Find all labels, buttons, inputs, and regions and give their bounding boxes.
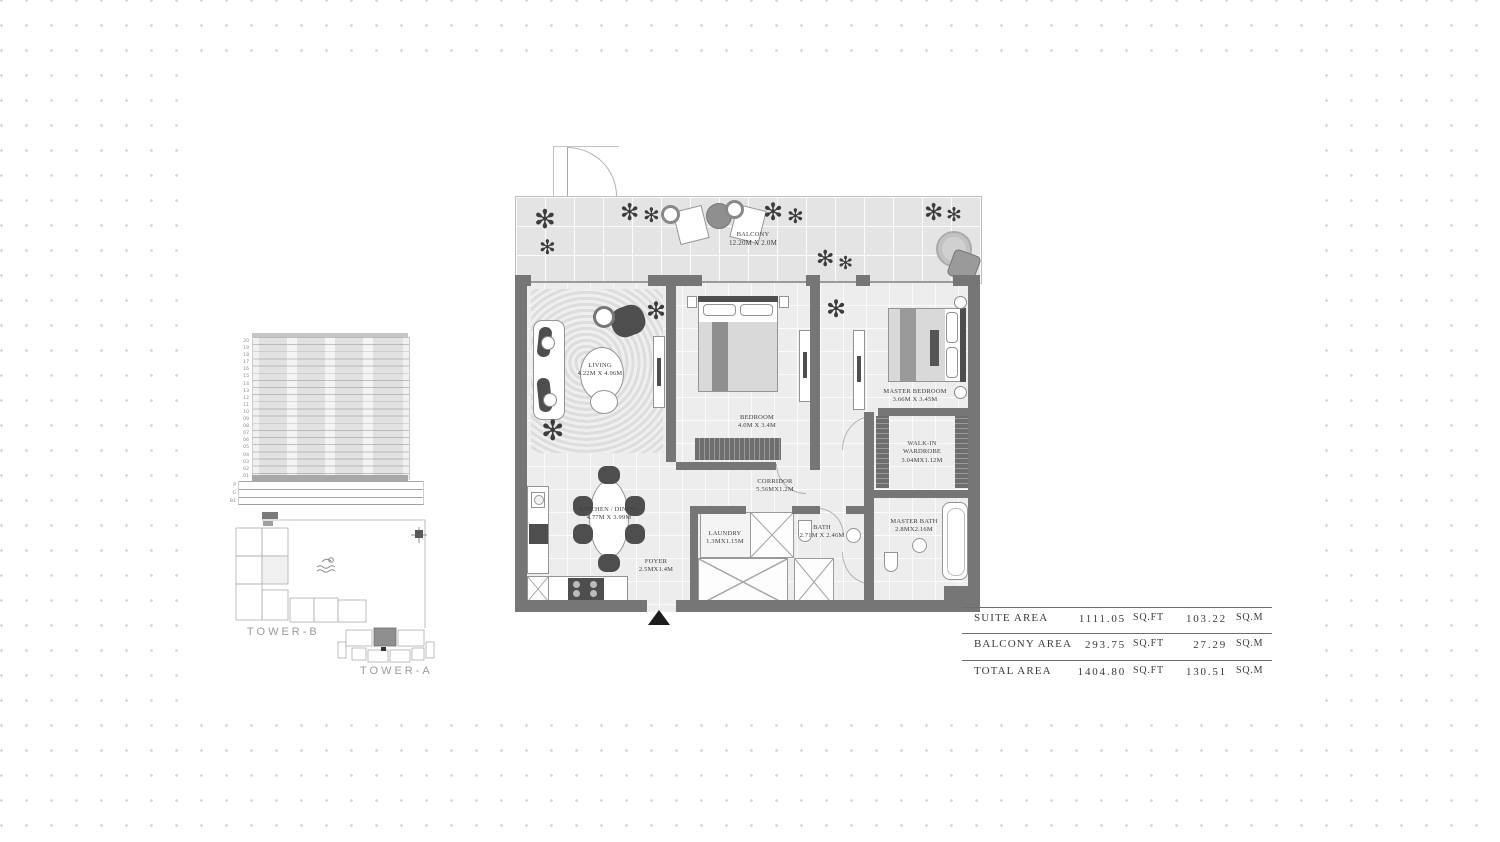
- room-label-bath: BATH 2.71M X 2.46M: [797, 524, 847, 541]
- room-dims: 4.22M X 4.96M: [565, 370, 635, 378]
- bed-throw: [712, 322, 728, 391]
- walkin-wardrobe-left: [876, 416, 889, 488]
- room-dims: 3.04MX1.12M: [897, 457, 947, 465]
- pillow: [740, 304, 773, 316]
- master-throw: [900, 309, 916, 381]
- wall-corridor-south: [690, 506, 746, 514]
- area-sqm-value: 103.22: [1155, 613, 1227, 625]
- plant-icon: ✻: [826, 298, 846, 322]
- burner: [573, 581, 580, 588]
- wall-master-zone: [864, 412, 874, 602]
- wall-bedroom-master: [810, 286, 820, 470]
- room-label-master-bedroom: MASTER BEDROOM 3.66M X 3.45M: [869, 388, 961, 405]
- side-table: [543, 393, 557, 407]
- room-name: MASTER BEDROOM: [869, 388, 961, 396]
- room-name: BEDROOM: [717, 414, 797, 422]
- room-name: KITCHEN / DINING: [574, 506, 644, 514]
- room-name: FOYER: [631, 558, 681, 566]
- wall-pylon: [806, 275, 820, 286]
- plant-icon: ✻: [924, 201, 943, 224]
- master-tv: [857, 356, 861, 382]
- room-dims: 12.20M X 2.0M: [683, 239, 823, 248]
- tower-b-label: TOWER-B: [247, 626, 320, 638]
- room-dims: 1.3MX1.15M: [700, 538, 750, 546]
- door-jamb-line: [553, 146, 554, 196]
- room-name: MASTER BATH: [887, 518, 941, 526]
- dining-chair: [598, 466, 620, 484]
- plant-icon: ✻: [816, 248, 834, 270]
- elevation-podium-labels: P G B1: [222, 482, 236, 506]
- door-head-line: [553, 146, 619, 147]
- bed-headboard: [698, 296, 778, 302]
- room-name: BALCONY: [683, 231, 823, 239]
- area-sqm-unit: SQ.M: [1236, 665, 1278, 676]
- room-dims: 4.0M X 3.4M: [717, 422, 797, 430]
- window-glazing: [515, 281, 980, 283]
- burner: [573, 590, 580, 597]
- wardrobe: [695, 438, 781, 460]
- master-sink: [912, 538, 927, 553]
- room-dims: 4.77M X 3.99M: [574, 514, 644, 522]
- dining-chair: [598, 554, 620, 572]
- wall-right: [968, 282, 980, 586]
- master-headboard: [960, 308, 966, 382]
- elevation-level01-band: [252, 475, 408, 481]
- plant-icon: ✻: [534, 206, 556, 232]
- room-label-kitchen-dining: KITCHEN / DINING 4.77M X 3.99M: [574, 506, 644, 523]
- room-name: BATH: [797, 524, 847, 532]
- room-label-foyer: FOYER 2.5MX1.4M: [631, 558, 681, 575]
- wall-left: [515, 282, 527, 612]
- elevation-floor-lines: [253, 337, 409, 480]
- room-dims: 5.56MX1.2M: [740, 486, 810, 494]
- wall-walkin-bottom: [874, 490, 980, 498]
- wall-corridor-south: [846, 506, 864, 514]
- wall-living-bedroom: [666, 286, 676, 462]
- wall-master-bottom: [878, 408, 980, 416]
- elevation-podium: [238, 481, 424, 505]
- area-sqft-value: 1404.80: [1030, 666, 1126, 678]
- brochure-page: 20 19 18 17 16 15 14 13 12 11 10 09 08 0…: [0, 0, 1500, 842]
- burner: [590, 581, 597, 588]
- room-label-master-bath: MASTER BATH 2.8MX2.16M: [887, 518, 941, 535]
- balcony-stool: [725, 200, 744, 219]
- elevation-roof-band: [252, 333, 408, 337]
- sink-basin: [534, 495, 544, 505]
- shaft-cross-icon: [699, 559, 787, 605]
- bed-duvet: [699, 322, 777, 391]
- wall-pylon: [856, 275, 870, 286]
- wall-bottom-left: [515, 600, 647, 612]
- room-dims: 2.8MX2.16M: [887, 526, 941, 534]
- wall-pylon: [648, 275, 702, 286]
- pool-swimmer-icon: [317, 558, 335, 573]
- room-label-balcony: BALCONY 12.20M X 2.0M: [683, 231, 823, 249]
- room-name: LIVING: [565, 362, 635, 370]
- wall-bottom-right: [676, 600, 964, 612]
- plant-icon: ✻: [946, 206, 962, 225]
- room-name: CORRIDOR: [740, 478, 810, 486]
- pillow: [946, 347, 958, 378]
- folded-blanket: [930, 330, 939, 366]
- table-rule: [962, 660, 1272, 661]
- fridge: [527, 576, 549, 602]
- plant-icon: ✻: [539, 238, 556, 258]
- area-sqm-value: 130.51: [1155, 666, 1227, 678]
- room-dims: 3.66M X 3.45M: [869, 396, 961, 404]
- plant-icon: ✻: [787, 207, 804, 227]
- pillow: [946, 312, 958, 343]
- elevation-floor-numbers: 20 19 18 17 16 15 14 13 12 11 10 09 08 0…: [234, 338, 249, 481]
- room-name: WALK-IN WARDROBE: [897, 440, 947, 457]
- nightstand: [687, 296, 697, 308]
- area-sqft-value: 1111.05: [1030, 613, 1126, 625]
- plant-icon: ✻: [763, 201, 783, 225]
- oven: [529, 524, 548, 544]
- plant-icon: ✻: [620, 201, 639, 224]
- site-gate-icon-2: [263, 521, 273, 526]
- burner: [590, 590, 597, 597]
- table-rule: [962, 607, 1272, 608]
- area-sqm-unit: SQ.M: [1236, 638, 1278, 649]
- fridge-cross-icon: [528, 577, 548, 601]
- side-table: [541, 336, 555, 350]
- lamp: [954, 296, 967, 309]
- bedroom-tv: [803, 352, 807, 378]
- plant-icon: ✻: [838, 254, 853, 272]
- area-sqm-unit: SQ.M: [1236, 612, 1278, 623]
- wall-corner: [944, 586, 980, 612]
- wall-foyer: [690, 506, 698, 612]
- room-label-laundry: LAUNDRY 1.3MX1.15M: [700, 530, 750, 547]
- room-dims: 2.5MX1.4M: [631, 566, 681, 574]
- coffee-table-small: [590, 390, 618, 414]
- balcony-stool: [661, 205, 680, 224]
- dining-chair: [625, 524, 645, 544]
- plant-icon: ✻: [646, 300, 666, 324]
- plant-icon: ✻: [643, 206, 660, 226]
- walkin-wardrobe-right: [955, 416, 968, 488]
- entry-marker-icon: [648, 610, 670, 625]
- tower-a-label: TOWER-A: [360, 665, 433, 677]
- wall-corridor-south: [792, 506, 820, 514]
- round-side-table: [593, 306, 615, 328]
- room-name: LAUNDRY: [700, 530, 750, 538]
- shaft: [698, 558, 788, 606]
- area-sqm-value: 27.29: [1155, 639, 1227, 651]
- table-rule: [962, 633, 1272, 634]
- pillow: [703, 304, 736, 316]
- room-label-corridor: CORRIDOR 5.56MX1.2M: [740, 478, 810, 495]
- plant-icon: ✻: [541, 417, 564, 445]
- bathtub-inner: [947, 508, 965, 576]
- room-label-living: LIVING 4.22M X 4.96M: [565, 362, 635, 379]
- wall-bedroom-corridor: [676, 462, 776, 470]
- tower-elevation-diagram: [252, 337, 410, 480]
- dining-chair: [573, 524, 593, 544]
- site-gate-icon: [262, 512, 278, 519]
- shaft: [750, 512, 794, 558]
- site-key-plan: [230, 505, 442, 685]
- room-dims: 2.71M X 2.46M: [797, 532, 847, 540]
- stove: [568, 578, 604, 600]
- shaft-cross-icon: [795, 559, 833, 605]
- shaft: [794, 558, 834, 606]
- highlighted-unit: [374, 628, 396, 646]
- nightstand: [779, 296, 789, 308]
- room-label-bedroom: BEDROOM 4.0M X 3.4M: [717, 414, 797, 431]
- tv: [657, 358, 661, 386]
- area-sqft-value: 293.75: [1030, 639, 1126, 651]
- shaft-cross-icon: [751, 513, 793, 557]
- master-toilet: [884, 552, 898, 572]
- unit-marker-dot: [381, 647, 386, 651]
- bath-sink: [846, 528, 861, 543]
- room-label-walkin-wardrobe: WALK-IN WARDROBE 3.04MX1.12M: [897, 440, 947, 465]
